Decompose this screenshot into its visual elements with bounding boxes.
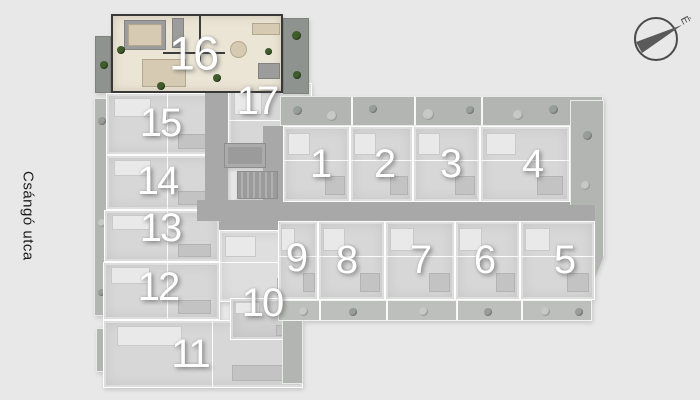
unit-label-15[interactable]: 15 <box>140 103 181 143</box>
unit-label-16[interactable]: 16 <box>169 30 217 77</box>
unit-label-5[interactable]: 5 <box>554 240 574 280</box>
balcony-divider <box>319 301 321 320</box>
furniture <box>259 64 279 78</box>
plant-icon <box>419 307 428 316</box>
plant-icon <box>293 71 301 79</box>
stair-core <box>237 171 278 199</box>
balcony-divider <box>456 301 458 320</box>
unit-label-12[interactable]: 12 <box>138 267 179 307</box>
plant-icon <box>575 308 583 316</box>
unit-label-11[interactable]: 11 <box>171 334 209 374</box>
plant-icon <box>157 82 165 90</box>
unit-label-10[interactable]: 10 <box>242 283 283 323</box>
top-terrace-band <box>280 96 603 126</box>
furniture <box>129 25 161 45</box>
unit-label-13[interactable]: 13 <box>140 208 181 248</box>
plant-icon <box>466 106 474 114</box>
unit-label-8[interactable]: 8 <box>336 240 356 280</box>
compass-north-label: É <box>678 14 693 27</box>
furniture <box>253 24 279 34</box>
plant-icon <box>100 61 108 69</box>
lobby <box>219 202 279 230</box>
plant-icon <box>541 307 550 316</box>
plant-icon <box>293 106 302 115</box>
unit-label-7[interactable]: 7 <box>410 240 430 280</box>
unit-label-6[interactable]: 6 <box>474 240 494 280</box>
unit-16-left-balcony <box>95 36 111 93</box>
plant-icon <box>98 117 106 125</box>
plant-icon <box>581 181 590 190</box>
terrace-divider <box>351 97 353 125</box>
unit-label-2[interactable]: 2 <box>374 144 394 184</box>
plant-icon <box>327 111 337 121</box>
plant-icon <box>513 110 523 120</box>
plant-icon <box>484 308 492 316</box>
unit-label-4[interactable]: 4 <box>522 144 542 184</box>
compass-icon: É <box>626 6 696 72</box>
plant-icon <box>349 308 357 316</box>
unit-16-right-terrace <box>283 18 309 94</box>
elevator-core <box>224 143 266 168</box>
terrace-divider <box>414 97 416 125</box>
terrace-divider <box>481 97 483 125</box>
balcony-divider <box>521 301 523 320</box>
unit-11-side-terrace <box>282 318 303 384</box>
plant-icon <box>583 131 592 140</box>
plant-icon <box>117 46 125 54</box>
balcony-divider <box>386 301 388 320</box>
plant-icon <box>299 307 308 316</box>
plant-icon <box>292 31 301 40</box>
plant-icon <box>265 48 272 55</box>
plant-icon <box>423 109 434 120</box>
unit-label-9[interactable]: 9 <box>286 238 306 278</box>
unit-label-3[interactable]: 3 <box>440 144 460 184</box>
bottom-balcony-band <box>278 300 592 321</box>
floorplan-page: Csángó utca <box>0 0 700 400</box>
unit-label-17[interactable]: 17 <box>237 81 278 121</box>
unit-label-14[interactable]: 14 <box>137 161 178 201</box>
plant-icon <box>369 105 377 113</box>
furniture <box>231 42 246 57</box>
floorplan: 1234567891011121314151617 <box>0 0 700 400</box>
plant-icon <box>549 105 558 114</box>
unit-label-1[interactable]: 1 <box>310 144 330 184</box>
